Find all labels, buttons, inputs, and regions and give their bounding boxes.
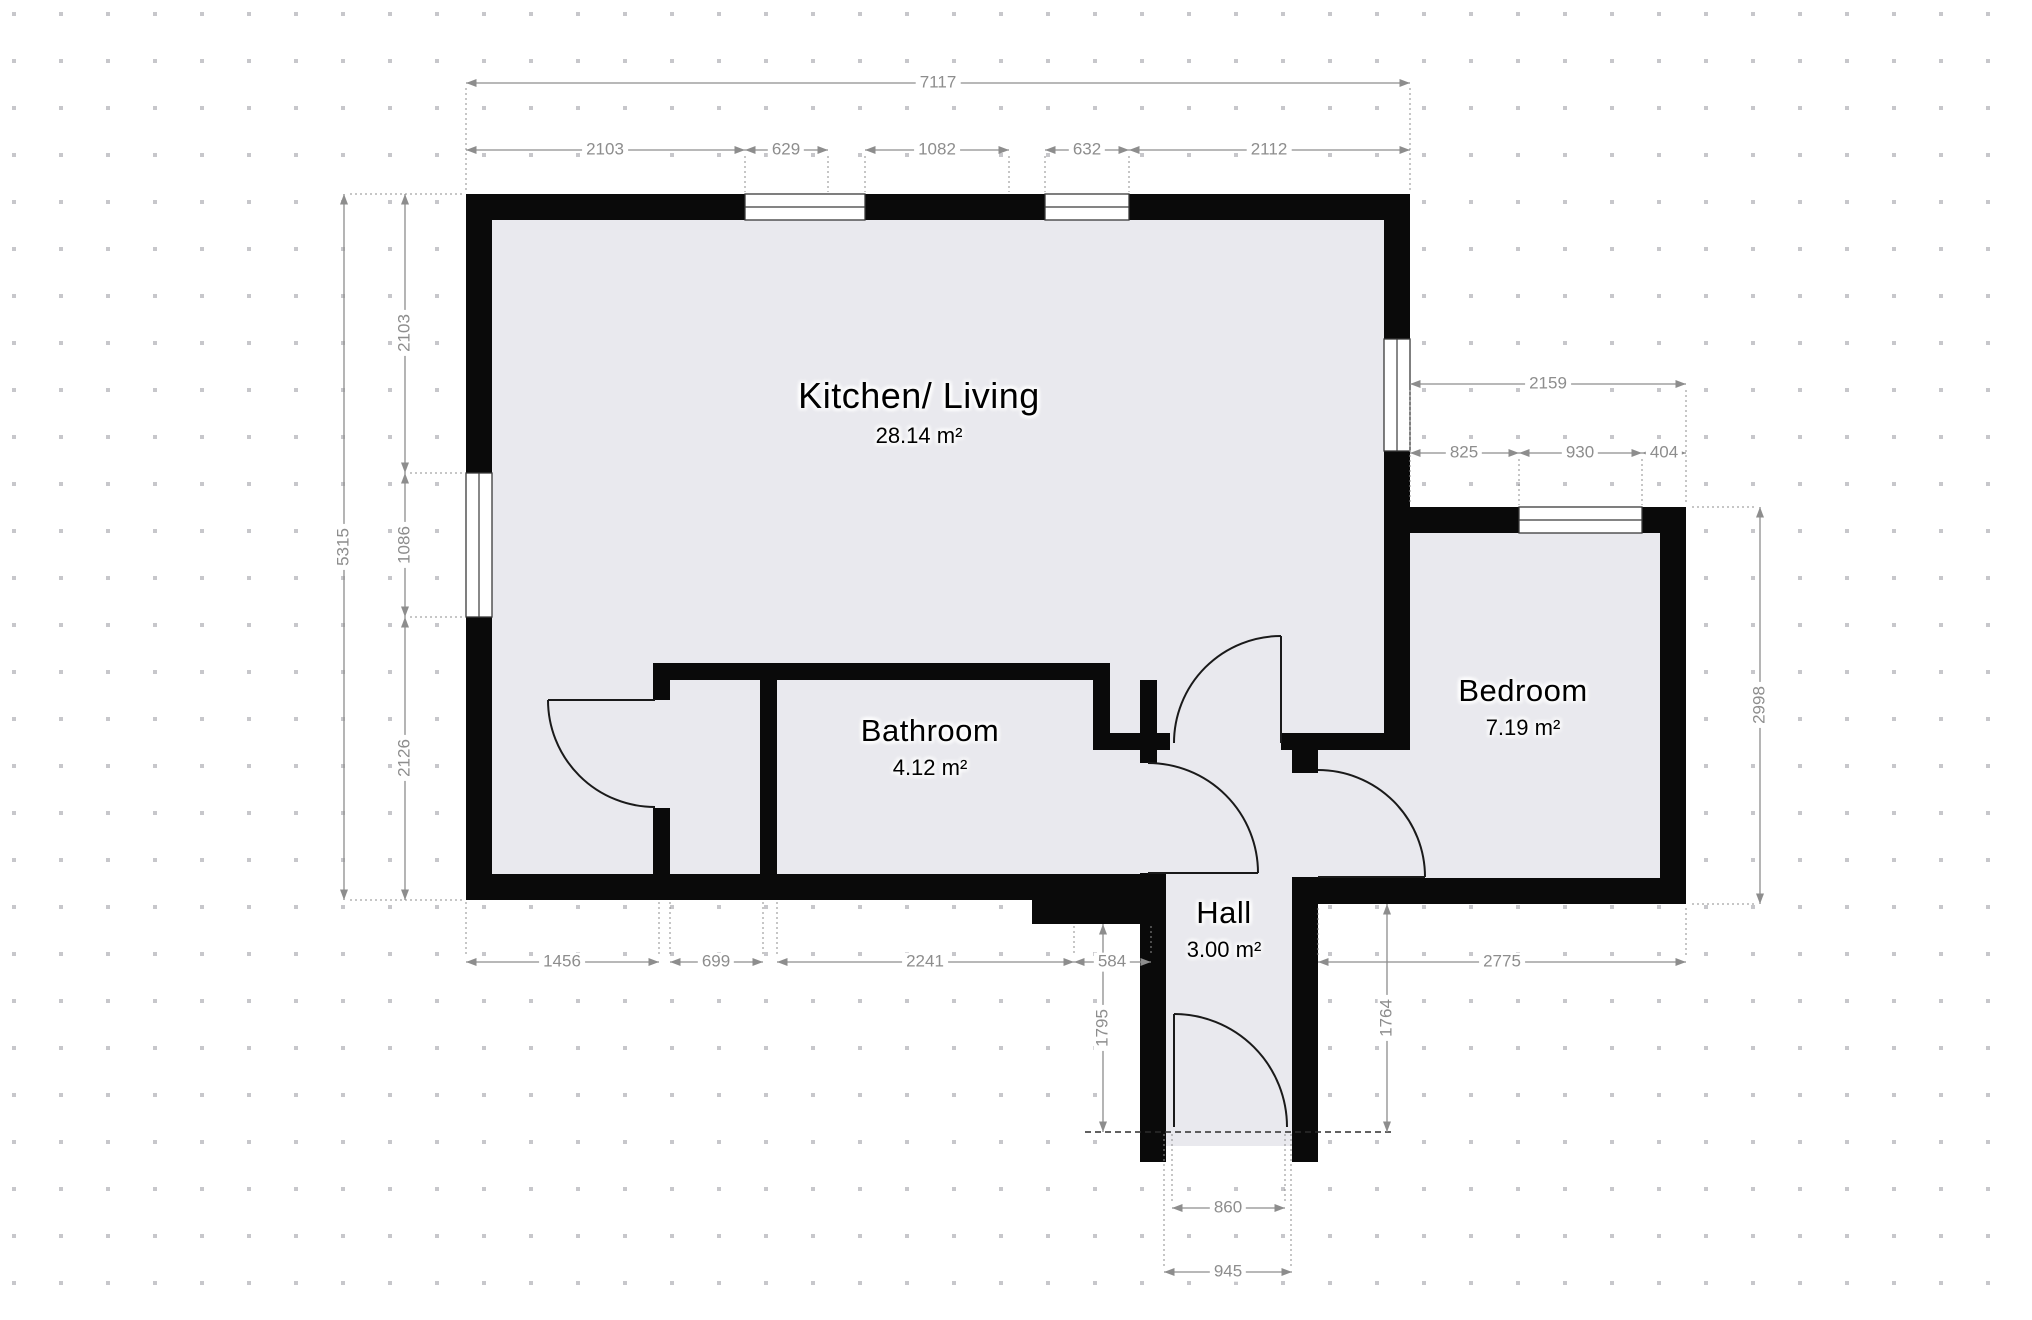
- floorplan-stage: Kitchen/ Living28.14 m²Bathroom4.12 m²Be…: [0, 0, 2032, 1320]
- bedroom-floor-ext: [1318, 750, 1410, 878]
- hall-floor: [1157, 750, 1292, 1146]
- window-top-1: [745, 194, 865, 220]
- window-bedroom: [1519, 507, 1642, 533]
- closet-doorway: [653, 700, 670, 808]
- kitchen-hall-doorway: [1170, 733, 1281, 750]
- bathroom-doorway: [1140, 763, 1157, 873]
- wall-bedroom-bottom: [1292, 878, 1686, 904]
- bedroom-doorway: [1292, 773, 1318, 877]
- wall-hall-right: [1292, 878, 1318, 1162]
- wall-bathroom-left: [760, 680, 777, 874]
- wall-kitchen-right: [1384, 194, 1410, 750]
- window-kitchen-right: [1384, 339, 1410, 451]
- window-top-2: [1045, 194, 1129, 220]
- bedroom-floor: [1410, 533, 1660, 878]
- wall-hall-left: [1140, 874, 1166, 1162]
- wall-top: [466, 194, 1410, 220]
- wall-bedroom-right: [1660, 507, 1686, 904]
- window-left: [466, 473, 492, 617]
- floorplan-canvas: [0, 0, 2032, 1320]
- wall-bathroom-top: [653, 663, 1110, 680]
